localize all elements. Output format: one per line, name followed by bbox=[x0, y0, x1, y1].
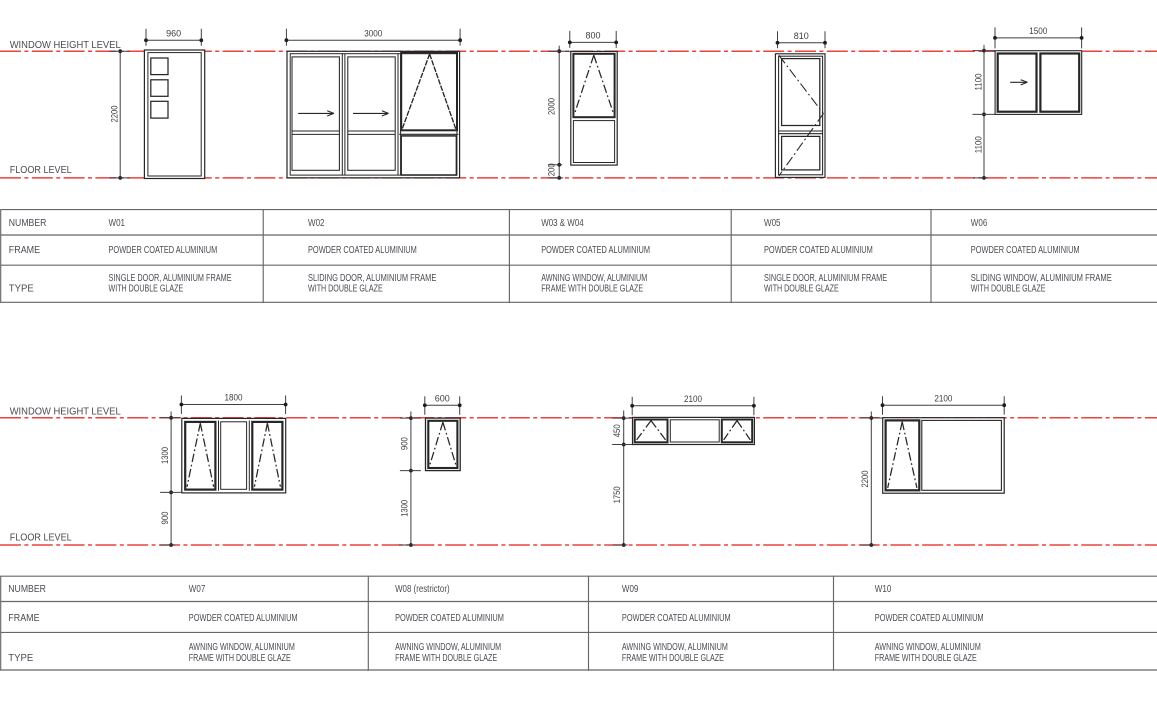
svg-text:AWNING WINDOW, ALUMINIUM: AWNING WINDOW, ALUMINIUM bbox=[541, 273, 647, 284]
svg-text:AWNING WINDOW, ALUMINIUM: AWNING WINDOW, ALUMINIUM bbox=[189, 642, 295, 653]
svg-text:1100: 1100 bbox=[973, 74, 983, 91]
svg-text:POWDER COATED ALUMINIUM: POWDER COATED ALUMINIUM bbox=[308, 245, 417, 256]
svg-text:1500: 1500 bbox=[1029, 26, 1047, 36]
svg-text:WITH DOUBLE GLAZE: WITH DOUBLE GLAZE bbox=[764, 283, 839, 294]
svg-text:810: 810 bbox=[794, 31, 809, 41]
svg-text:1300: 1300 bbox=[400, 500, 410, 517]
svg-text:TYPE: TYPE bbox=[8, 653, 33, 664]
svg-text:POWDER COATED ALUMINIUM: POWDER COATED ALUMINIUM bbox=[541, 245, 650, 256]
svg-text:1800: 1800 bbox=[225, 393, 243, 403]
svg-text:200: 200 bbox=[546, 163, 556, 176]
svg-text:FLOOR LEVEL: FLOOR LEVEL bbox=[10, 533, 73, 544]
svg-text:W03 & W04: W03 & W04 bbox=[541, 218, 584, 229]
svg-text:FRAME: FRAME bbox=[9, 245, 41, 256]
svg-text:POWDER COATED ALUMINIUM: POWDER COATED ALUMINIUM bbox=[971, 245, 1080, 256]
svg-text:POWDER COATED ALUMINIUM: POWDER COATED ALUMINIUM bbox=[764, 245, 873, 256]
svg-text:NUMBER: NUMBER bbox=[9, 218, 47, 229]
svg-text:W07: W07 bbox=[189, 584, 206, 595]
svg-text:FLOOR LEVEL: FLOOR LEVEL bbox=[10, 165, 73, 176]
svg-text:FRAME WITH DOUBLE GLAZE: FRAME WITH DOUBLE GLAZE bbox=[395, 653, 497, 664]
svg-text:WINDOW HEIGHT LEVEL: WINDOW HEIGHT LEVEL bbox=[10, 40, 122, 51]
svg-text:POWDER COATED ALUMINIUM: POWDER COATED ALUMINIUM bbox=[875, 613, 984, 624]
svg-text:W06: W06 bbox=[971, 218, 988, 229]
svg-text:FRAME: FRAME bbox=[8, 613, 40, 624]
svg-text:POWDER COATED ALUMINIUM: POWDER COATED ALUMINIUM bbox=[109, 245, 218, 256]
svg-text:2000: 2000 bbox=[546, 98, 556, 115]
svg-text:WITH DOUBLE GLAZE: WITH DOUBLE GLAZE bbox=[109, 283, 184, 294]
svg-text:SLIDING DOOR, ALUMINIUM FRAME: SLIDING DOOR, ALUMINIUM FRAME bbox=[308, 273, 437, 284]
svg-text:2200: 2200 bbox=[109, 106, 119, 123]
svg-text:W01: W01 bbox=[109, 218, 126, 229]
svg-text:800: 800 bbox=[586, 31, 601, 41]
svg-text:NUMBER: NUMBER bbox=[8, 584, 46, 595]
svg-text:W10: W10 bbox=[875, 584, 892, 595]
svg-text:900: 900 bbox=[400, 437, 410, 450]
svg-text:W08 (restrictor): W08 (restrictor) bbox=[395, 584, 450, 595]
svg-text:2100: 2100 bbox=[684, 394, 702, 404]
svg-text:FRAME WITH DOUBLE GLAZE: FRAME WITH DOUBLE GLAZE bbox=[189, 653, 291, 664]
svg-text:1750: 1750 bbox=[612, 486, 622, 503]
svg-text:TYPE: TYPE bbox=[9, 283, 34, 294]
svg-text:POWDER COATED ALUMINIUM: POWDER COATED ALUMINIUM bbox=[622, 613, 731, 624]
svg-text:W02: W02 bbox=[308, 218, 325, 229]
svg-text:POWDER COATED ALUMINIUM: POWDER COATED ALUMINIUM bbox=[189, 613, 298, 624]
svg-text:1300: 1300 bbox=[160, 447, 170, 464]
svg-text:3000: 3000 bbox=[364, 28, 382, 38]
svg-text:900: 900 bbox=[160, 512, 170, 525]
svg-text:W09: W09 bbox=[622, 584, 639, 595]
svg-text:SINGLE DOOR, ALUMINIUM FRAME: SINGLE DOOR, ALUMINIUM FRAME bbox=[764, 273, 887, 284]
svg-text:POWDER COATED ALUMINIUM: POWDER COATED ALUMINIUM bbox=[395, 613, 504, 624]
svg-text:2200: 2200 bbox=[860, 471, 870, 488]
svg-text:AWNING WINDOW, ALUMINIUM: AWNING WINDOW, ALUMINIUM bbox=[395, 642, 501, 653]
svg-text:WITH DOUBLE GLAZE: WITH DOUBLE GLAZE bbox=[971, 283, 1046, 294]
svg-text:SLIDING WINDOW, ALUMINIUM FRAM: SLIDING WINDOW, ALUMINIUM FRAME bbox=[971, 273, 1112, 284]
svg-text:SINGLE DOOR, ALUMINIUM FRAME: SINGLE DOOR, ALUMINIUM FRAME bbox=[109, 273, 232, 284]
svg-text:WITH DOUBLE GLAZE: WITH DOUBLE GLAZE bbox=[308, 283, 383, 294]
svg-text:FRAME WITH DOUBLE GLAZE: FRAME WITH DOUBLE GLAZE bbox=[622, 653, 724, 664]
svg-text:960: 960 bbox=[166, 29, 181, 39]
svg-text:W05: W05 bbox=[764, 218, 781, 229]
svg-text:600: 600 bbox=[435, 394, 450, 404]
svg-text:1100: 1100 bbox=[973, 136, 983, 153]
svg-text:FRAME WITH DOUBLE GLAZE: FRAME WITH DOUBLE GLAZE bbox=[875, 653, 977, 664]
svg-text:2100: 2100 bbox=[934, 393, 952, 403]
svg-text:450: 450 bbox=[612, 424, 622, 437]
svg-text:FRAME WITH DOUBLE GLAZE: FRAME WITH DOUBLE GLAZE bbox=[541, 283, 643, 294]
svg-text:AWNING WINDOW, ALUMINIUM: AWNING WINDOW, ALUMINIUM bbox=[875, 642, 981, 653]
svg-text:WINDOW HEIGHT LEVEL: WINDOW HEIGHT LEVEL bbox=[10, 406, 122, 417]
svg-text:AWNING WINDOW, ALUMINIUM: AWNING WINDOW, ALUMINIUM bbox=[622, 642, 728, 653]
